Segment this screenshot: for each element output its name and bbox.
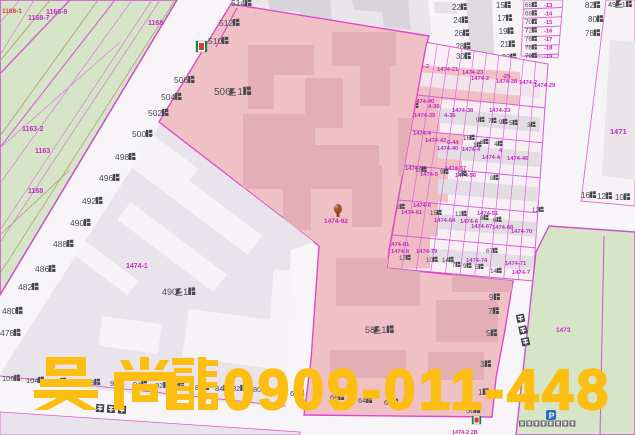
svg-text:-15: -15 [544,20,553,26]
svg-text:21: 21 [500,40,509,49]
svg-text:1474-64: 1474-64 [434,218,456,224]
svg-text:16: 16 [581,191,590,200]
svg-text:1: 1 [622,0,626,9]
svg-text:8: 8 [480,215,484,222]
svg-text:1163: 1163 [35,148,50,155]
svg-text:4: 4 [494,141,498,148]
svg-text:12: 12 [455,211,462,218]
svg-text:14: 14 [490,268,497,275]
svg-text:1474-61: 1474-61 [401,210,423,216]
svg-text:9: 9 [476,117,480,124]
svg-text:480: 480 [2,306,16,316]
svg-text:1168: 1168 [148,20,163,27]
svg-text:490: 490 [162,287,177,297]
svg-text:1473: 1473 [556,327,571,334]
svg-text:1474-42: 1474-42 [425,138,446,144]
svg-text:1168-1: 1168-1 [2,8,22,15]
svg-text:1474-71: 1474-71 [505,261,527,267]
svg-text:7: 7 [488,307,493,316]
svg-text:9: 9 [489,293,494,302]
svg-text:506: 506 [174,75,188,85]
svg-text:10: 10 [615,193,624,202]
svg-text:506: 506 [214,87,231,98]
svg-text:58: 58 [365,325,375,335]
svg-text:24: 24 [453,16,462,25]
svg-text:1474-7: 1474-7 [512,270,530,276]
svg-text:5: 5 [458,171,462,178]
svg-text:1474-21: 1474-21 [437,67,459,73]
svg-text:7: 7 [488,118,492,125]
svg-text:514: 514 [231,0,245,8]
svg-text:502: 502 [148,108,162,118]
svg-text:1: 1 [237,87,243,98]
svg-text:482: 482 [18,282,32,292]
svg-text:1474-67: 1474-67 [471,224,492,230]
svg-text:15: 15 [430,210,437,217]
svg-text:486: 486 [35,264,49,274]
svg-text:17: 17 [399,255,406,262]
svg-text:1474-2 2B: 1474-2 2B [452,430,478,435]
svg-text:504: 504 [161,92,175,102]
svg-text:67: 67 [486,248,493,255]
svg-text:1474-81: 1474-81 [388,242,410,248]
svg-text:12: 12 [532,207,539,214]
svg-text:8: 8 [490,175,494,182]
svg-text:7: 7 [452,262,456,269]
svg-text:1163-2: 1163-2 [22,126,44,133]
svg-text:8: 8 [480,139,484,146]
svg-text:76: 76 [525,36,533,43]
svg-text:510: 510 [208,36,222,46]
svg-text:1474-4: 1474-4 [413,131,432,137]
svg-text:78: 78 [585,29,594,38]
svg-text:19: 19 [499,27,508,36]
svg-text:1471: 1471 [610,127,627,136]
svg-text:106: 106 [2,374,15,383]
svg-text:-17: -17 [544,37,552,43]
svg-text:68: 68 [525,11,533,18]
svg-text:1474-70: 1474-70 [511,229,532,235]
svg-text:30: 30 [456,52,465,61]
svg-text:1474-92: 1474-92 [324,218,348,225]
svg-text:492: 492 [82,196,96,206]
svg-text:496: 496 [99,173,113,183]
svg-text:104: 104 [26,376,39,385]
svg-text:1474-33: 1474-33 [489,108,511,114]
svg-text:-19: -19 [544,54,553,60]
svg-text:72: 72 [525,28,533,35]
svg-text:1474-79: 1474-79 [416,249,438,255]
svg-text:1474-4: 1474-4 [462,147,481,153]
svg-text:1474-6: 1474-6 [413,203,432,209]
svg-text:1: 1 [381,325,386,335]
svg-text:-13: -13 [544,3,553,9]
svg-text:22: 22 [452,3,461,12]
svg-text:70: 70 [525,19,533,26]
svg-text:78: 78 [525,45,533,52]
svg-text:490: 490 [70,218,84,228]
svg-text:9: 9 [499,119,503,126]
svg-text:1474-40: 1474-40 [437,146,458,152]
svg-text:49: 49 [608,0,616,9]
svg-text:1168: 1168 [28,188,43,195]
svg-text:478: 478 [0,328,14,338]
svg-text:80: 80 [588,15,597,24]
svg-text:10: 10 [415,167,422,174]
svg-text:12: 12 [597,192,606,201]
svg-text:1474-39: 1474-39 [414,113,436,119]
svg-text:1474-5: 1474-5 [420,172,439,178]
svg-text:6: 6 [493,217,497,224]
svg-text:0909-011-448: 0909-011-448 [223,358,611,421]
svg-text:5: 5 [509,120,513,127]
svg-text:9: 9 [440,169,444,176]
svg-text:1474-2: 1474-2 [471,76,489,82]
svg-text:512: 512 [219,18,233,28]
svg-text:68: 68 [525,2,533,9]
svg-text:26: 26 [454,29,463,38]
svg-text:-14: -14 [544,12,553,18]
svg-text:1: 1 [183,287,188,297]
svg-text:82: 82 [585,1,594,10]
svg-text:1474-4: 1474-4 [482,155,501,161]
svg-text:14: 14 [442,257,449,264]
svg-text:1474-1: 1474-1 [126,263,148,270]
svg-text:5: 5 [486,329,491,338]
svg-text:5: 5 [475,264,479,271]
svg-text:-16: -16 [544,29,553,35]
svg-text:9: 9 [463,263,467,270]
svg-text:79: 79 [525,53,533,60]
svg-text:4-36: 4-36 [428,104,440,110]
svg-text:1168-7: 1168-7 [28,15,50,22]
svg-text:10: 10 [426,257,433,264]
svg-text:16: 16 [463,135,470,142]
svg-text:-18: -18 [544,46,553,52]
svg-text:500: 500 [132,129,146,139]
svg-text:3: 3 [527,122,531,129]
svg-text:488: 488 [53,239,67,249]
svg-text:15: 15 [496,1,505,10]
svg-text:4-36: 4-36 [444,113,456,119]
svg-text:1: 1 [473,142,477,149]
svg-text:17: 17 [497,14,506,23]
svg-text:1474-46: 1474-46 [507,156,529,162]
svg-text:1474-28: 1474-28 [496,79,518,85]
svg-text:498: 498 [115,152,129,162]
svg-text:1474-29: 1474-29 [534,83,556,89]
